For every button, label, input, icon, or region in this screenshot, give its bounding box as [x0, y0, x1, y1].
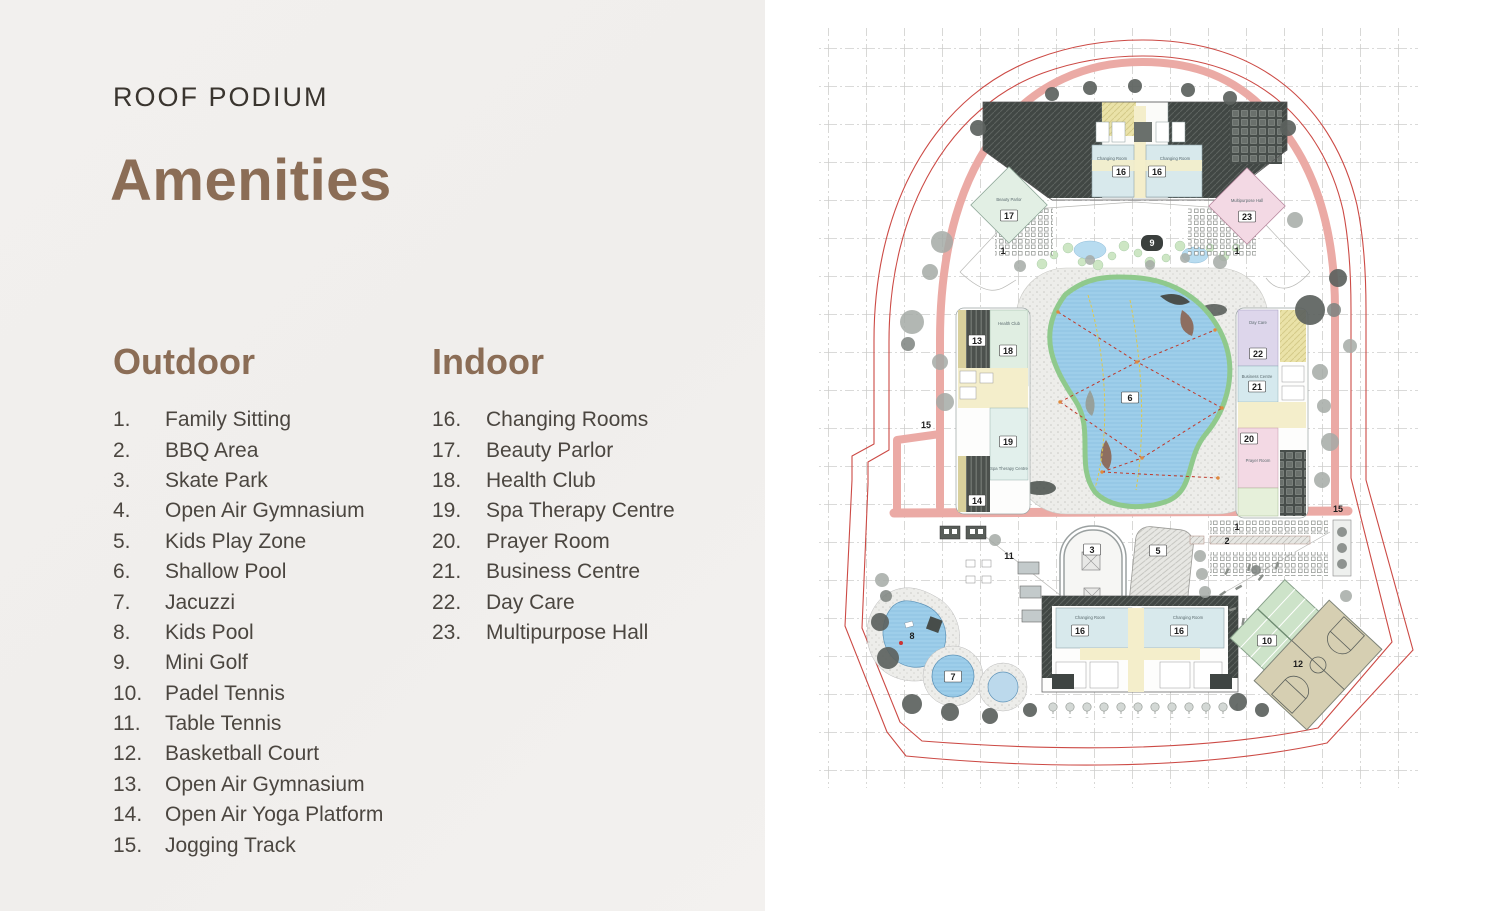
item-number: 23. [432, 621, 486, 645]
list-item: 17.Beauty Parlor [432, 435, 742, 465]
map-label-16: 16 [1075, 626, 1085, 636]
indoor-list: 16.Changing Rooms 17.Beauty Parlor 18.He… [432, 405, 742, 648]
roof-podium-site-plan: Changing Room Changing Room Beauty Parlo… [790, 10, 1480, 890]
room-label: Spa Therapy Centre [990, 466, 1028, 471]
room-label: Changing Room [1160, 156, 1191, 161]
item-number: 18. [432, 469, 486, 493]
item-number: 3. [113, 469, 165, 493]
map-label-11: 11 [1004, 551, 1014, 561]
list-item: 14.Open Air Yoga Platform [113, 800, 423, 830]
map-label-16: 16 [1174, 626, 1184, 636]
list-item: 15.Jogging Track [113, 830, 423, 860]
map-label-16: 16 [1116, 167, 1126, 177]
map-label-1: 1 [1234, 246, 1239, 256]
item-label: Spa Therapy Centre [486, 499, 675, 523]
list-item: 9.Mini Golf [113, 648, 423, 678]
room-label: Beauty Parlor [996, 197, 1022, 202]
item-label: Table Tennis [165, 712, 281, 736]
list-item: 23.Multipurpose Hall [432, 618, 742, 648]
map-label-15: 15 [921, 420, 931, 430]
item-label: Kids Play Zone [165, 530, 306, 554]
loungers-row [1048, 702, 1238, 718]
right-amenity-building: Day Care Business Centre Prayer Room [1236, 308, 1308, 518]
map-label-12: 12 [1293, 659, 1303, 669]
item-number: 17. [432, 439, 486, 463]
map-label-9: 9 [1149, 238, 1154, 248]
list-item: 19.Spa Therapy Centre [432, 496, 742, 526]
map-label-23: 23 [1242, 212, 1252, 222]
outdoor-list: 1.Family Sitting 2.BBQ Area 3.Skate Park… [113, 405, 423, 861]
list-item: 5.Kids Play Zone [113, 527, 423, 557]
item-label: Changing Rooms [486, 408, 648, 432]
item-label: Jogging Track [165, 834, 296, 858]
room-label: Changing Room [1173, 615, 1204, 620]
item-number: 1. [113, 408, 165, 432]
indoor-heading: Indoor [432, 341, 742, 383]
list-item: 13.Open Air Gymnasium [113, 770, 423, 800]
list-item: 20.Prayer Room [432, 527, 742, 557]
map-label-16: 16 [1152, 167, 1162, 177]
list-item: 6.Shallow Pool [113, 557, 423, 587]
item-label: Skate Park [165, 469, 268, 493]
item-label: Beauty Parlor [486, 439, 613, 463]
room-label: Multipurpose Hall [1231, 198, 1263, 203]
page-title: Amenities [110, 147, 392, 214]
item-label: Basketball Court [165, 742, 319, 766]
item-number: 16. [432, 408, 486, 432]
map-label-2: 2 [1224, 536, 1229, 546]
room-label: Changing Room [1075, 615, 1106, 620]
item-number: 11. [113, 712, 165, 736]
list-item: 7.Jacuzzi [113, 587, 423, 617]
map-label-10: 10 [1262, 636, 1272, 646]
map-label-22: 22 [1253, 349, 1263, 359]
map-label-20: 20 [1244, 434, 1254, 444]
outdoor-heading: Outdoor [113, 341, 423, 383]
map-label-5: 5 [1155, 546, 1160, 556]
item-label: Open Air Yoga Platform [165, 803, 383, 827]
list-item: 8.Kids Pool [113, 618, 423, 648]
map-label-17: 17 [1004, 211, 1014, 221]
map-label-7: 7 [950, 672, 955, 682]
item-number: 19. [432, 499, 486, 523]
item-label: Shallow Pool [165, 560, 286, 584]
indoor-column: Indoor 16.Changing Rooms 17.Beauty Parlo… [432, 341, 742, 648]
map-label-21: 21 [1252, 382, 1262, 392]
map-label-8: 8 [909, 631, 914, 641]
list-item: 21.Business Centre [432, 557, 742, 587]
item-number: 8. [113, 621, 165, 645]
page-kicker: ROOF PODIUM [113, 82, 329, 113]
map-label-19: 19 [1003, 437, 1013, 447]
item-label: Multipurpose Hall [486, 621, 648, 645]
map-label-15: 15 [1333, 504, 1343, 514]
item-number: 15. [113, 834, 165, 858]
item-number: 21. [432, 560, 486, 584]
list-item: 3.Skate Park [113, 466, 423, 496]
item-label: BBQ Area [165, 439, 258, 463]
item-number: 9. [113, 651, 165, 675]
map-label-14: 14 [972, 496, 982, 506]
item-label: Day Care [486, 591, 575, 615]
item-number: 13. [113, 773, 165, 797]
list-item: 16.Changing Rooms [432, 405, 742, 435]
list-item: 22.Day Care [432, 587, 742, 617]
item-number: 2. [113, 439, 165, 463]
item-number: 10. [113, 682, 165, 706]
list-item: 1.Family Sitting [113, 405, 423, 435]
room-label: Changing Room [1097, 156, 1128, 161]
item-number: 14. [113, 803, 165, 827]
map-label-18: 18 [1003, 346, 1013, 356]
list-item: 4.Open Air Gymnasium [113, 496, 423, 526]
amenities-panel: ROOF PODIUM Amenities Outdoor 1.Family S… [0, 0, 765, 911]
item-label: Business Centre [486, 560, 640, 584]
item-label: Kids Pool [165, 621, 254, 645]
item-number: 6. [113, 560, 165, 584]
item-number: 12. [113, 742, 165, 766]
item-label: Open Air Gymnasium [165, 499, 365, 523]
item-label: Health Club [486, 469, 596, 493]
room-label: Health Club [998, 321, 1021, 326]
room-label: Prayer Room [1246, 458, 1271, 463]
item-number: 4. [113, 499, 165, 523]
item-label: Family Sitting [165, 408, 291, 432]
map-label-13: 13 [972, 336, 982, 346]
room-label: Business Centre [1242, 374, 1273, 379]
item-label: Prayer Room [486, 530, 610, 554]
list-item: 18.Health Club [432, 466, 742, 496]
item-number: 5. [113, 530, 165, 554]
map-label-3: 3 [1089, 545, 1094, 555]
item-number: 22. [432, 591, 486, 615]
map-label-1: 1 [1000, 246, 1005, 256]
map-label-6: 6 [1127, 393, 1132, 403]
list-item: 2.BBQ Area [113, 435, 423, 465]
item-label: Padel Tennis [165, 682, 285, 706]
item-number: 20. [432, 530, 486, 554]
item-label: Mini Golf [165, 651, 248, 675]
list-item: 11.Table Tennis [113, 709, 423, 739]
list-item: 12.Basketball Court [113, 739, 423, 769]
bottom-changing-rooms-building: Changing Room Changing Room [1042, 596, 1238, 692]
item-label: Open Air Gymnasium [165, 773, 365, 797]
room-label: Day Care [1249, 320, 1267, 325]
list-item: 10.Padel Tennis [113, 679, 423, 709]
item-number: 7. [113, 591, 165, 615]
outdoor-column: Outdoor 1.Family Sitting 2.BBQ Area 3.Sk… [113, 341, 423, 861]
left-amenity-building: Health Club Spa Therapy Centre [956, 308, 1030, 514]
brochure-page: ROOF PODIUM Amenities Outdoor 1.Family S… [0, 0, 1511, 911]
item-label: Jacuzzi [165, 591, 235, 615]
map-label-1: 1 [1234, 522, 1239, 532]
